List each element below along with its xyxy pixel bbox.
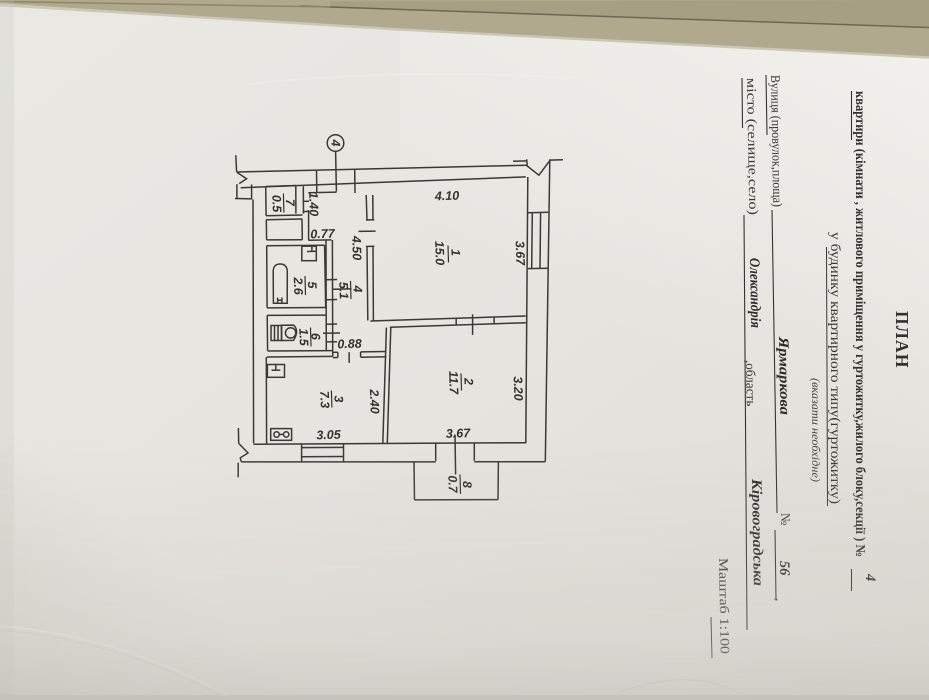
svg-text:1.40: 1.40 <box>306 192 321 217</box>
svg-text:3.67: 3.67 <box>446 426 472 441</box>
svg-text:0.5: 0.5 <box>269 195 284 214</box>
svg-text:2: 2 <box>461 377 475 385</box>
svg-text:7.3: 7.3 <box>317 391 332 409</box>
svg-text:місто (селище,село): місто (селище,село) <box>744 78 761 215</box>
svg-text:0.88: 0.88 <box>337 337 362 352</box>
svg-text:1.5: 1.5 <box>296 328 311 347</box>
svg-text:ПЛАН: ПЛАН <box>892 311 912 369</box>
svg-text:4: 4 <box>350 284 364 292</box>
svg-text:4: 4 <box>328 138 342 146</box>
svg-text:,область: ,область <box>743 360 759 407</box>
svg-text:15.0: 15.0 <box>432 241 447 266</box>
svg-text:5.1: 5.1 <box>336 282 351 300</box>
svg-text:3.20: 3.20 <box>511 376 526 401</box>
svg-text:Олександрія: Олександрія <box>746 258 763 328</box>
svg-text:Ярмаркова: Ярмаркова <box>775 336 792 415</box>
svg-text:3: 3 <box>331 395 345 402</box>
svg-text:3.67: 3.67 <box>513 241 528 267</box>
svg-text:1: 1 <box>448 249 462 256</box>
svg-text:2.6: 2.6 <box>291 276 306 296</box>
svg-text:2.40: 2.40 <box>367 388 382 414</box>
svg-text:Вулиця (провулок,площа): Вулиця (провулок,площа) <box>768 75 785 207</box>
svg-text:0.77: 0.77 <box>310 227 336 242</box>
svg-text:4.10: 4.10 <box>434 189 460 204</box>
svg-text:4.50: 4.50 <box>349 235 364 261</box>
svg-text:11.7: 11.7 <box>446 371 461 396</box>
